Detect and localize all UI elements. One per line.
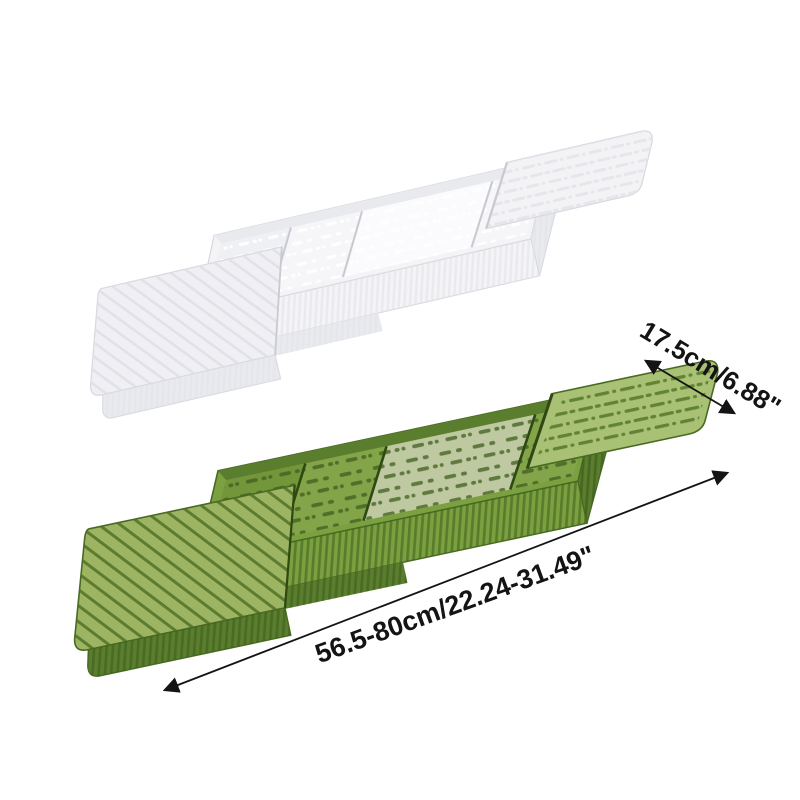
product-image: 17.5cm/6.88" 56.5-80cm/22.24-31.49" <box>0 0 800 800</box>
product-image-svg: 17.5cm/6.88" 56.5-80cm/22.24-31.49" <box>0 0 800 800</box>
white-tray-left-arm <box>69 247 310 421</box>
white-tray-right-arm <box>473 129 664 228</box>
green-tray-left-arm <box>52 485 325 679</box>
white-tray <box>62 129 686 421</box>
